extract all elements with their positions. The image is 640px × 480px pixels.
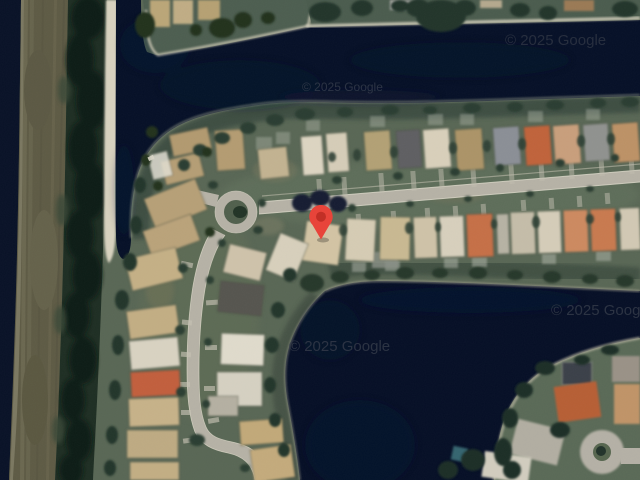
- svg-text:© 2025 Google: © 2025 Google: [505, 32, 606, 49]
- svg-text:© 2025 Google: © 2025 Google: [302, 80, 383, 94]
- svg-text:© 2025 Goog: © 2025 Goog: [551, 302, 640, 319]
- svg-text:© 2025 Google: © 2025 Google: [289, 338, 390, 355]
